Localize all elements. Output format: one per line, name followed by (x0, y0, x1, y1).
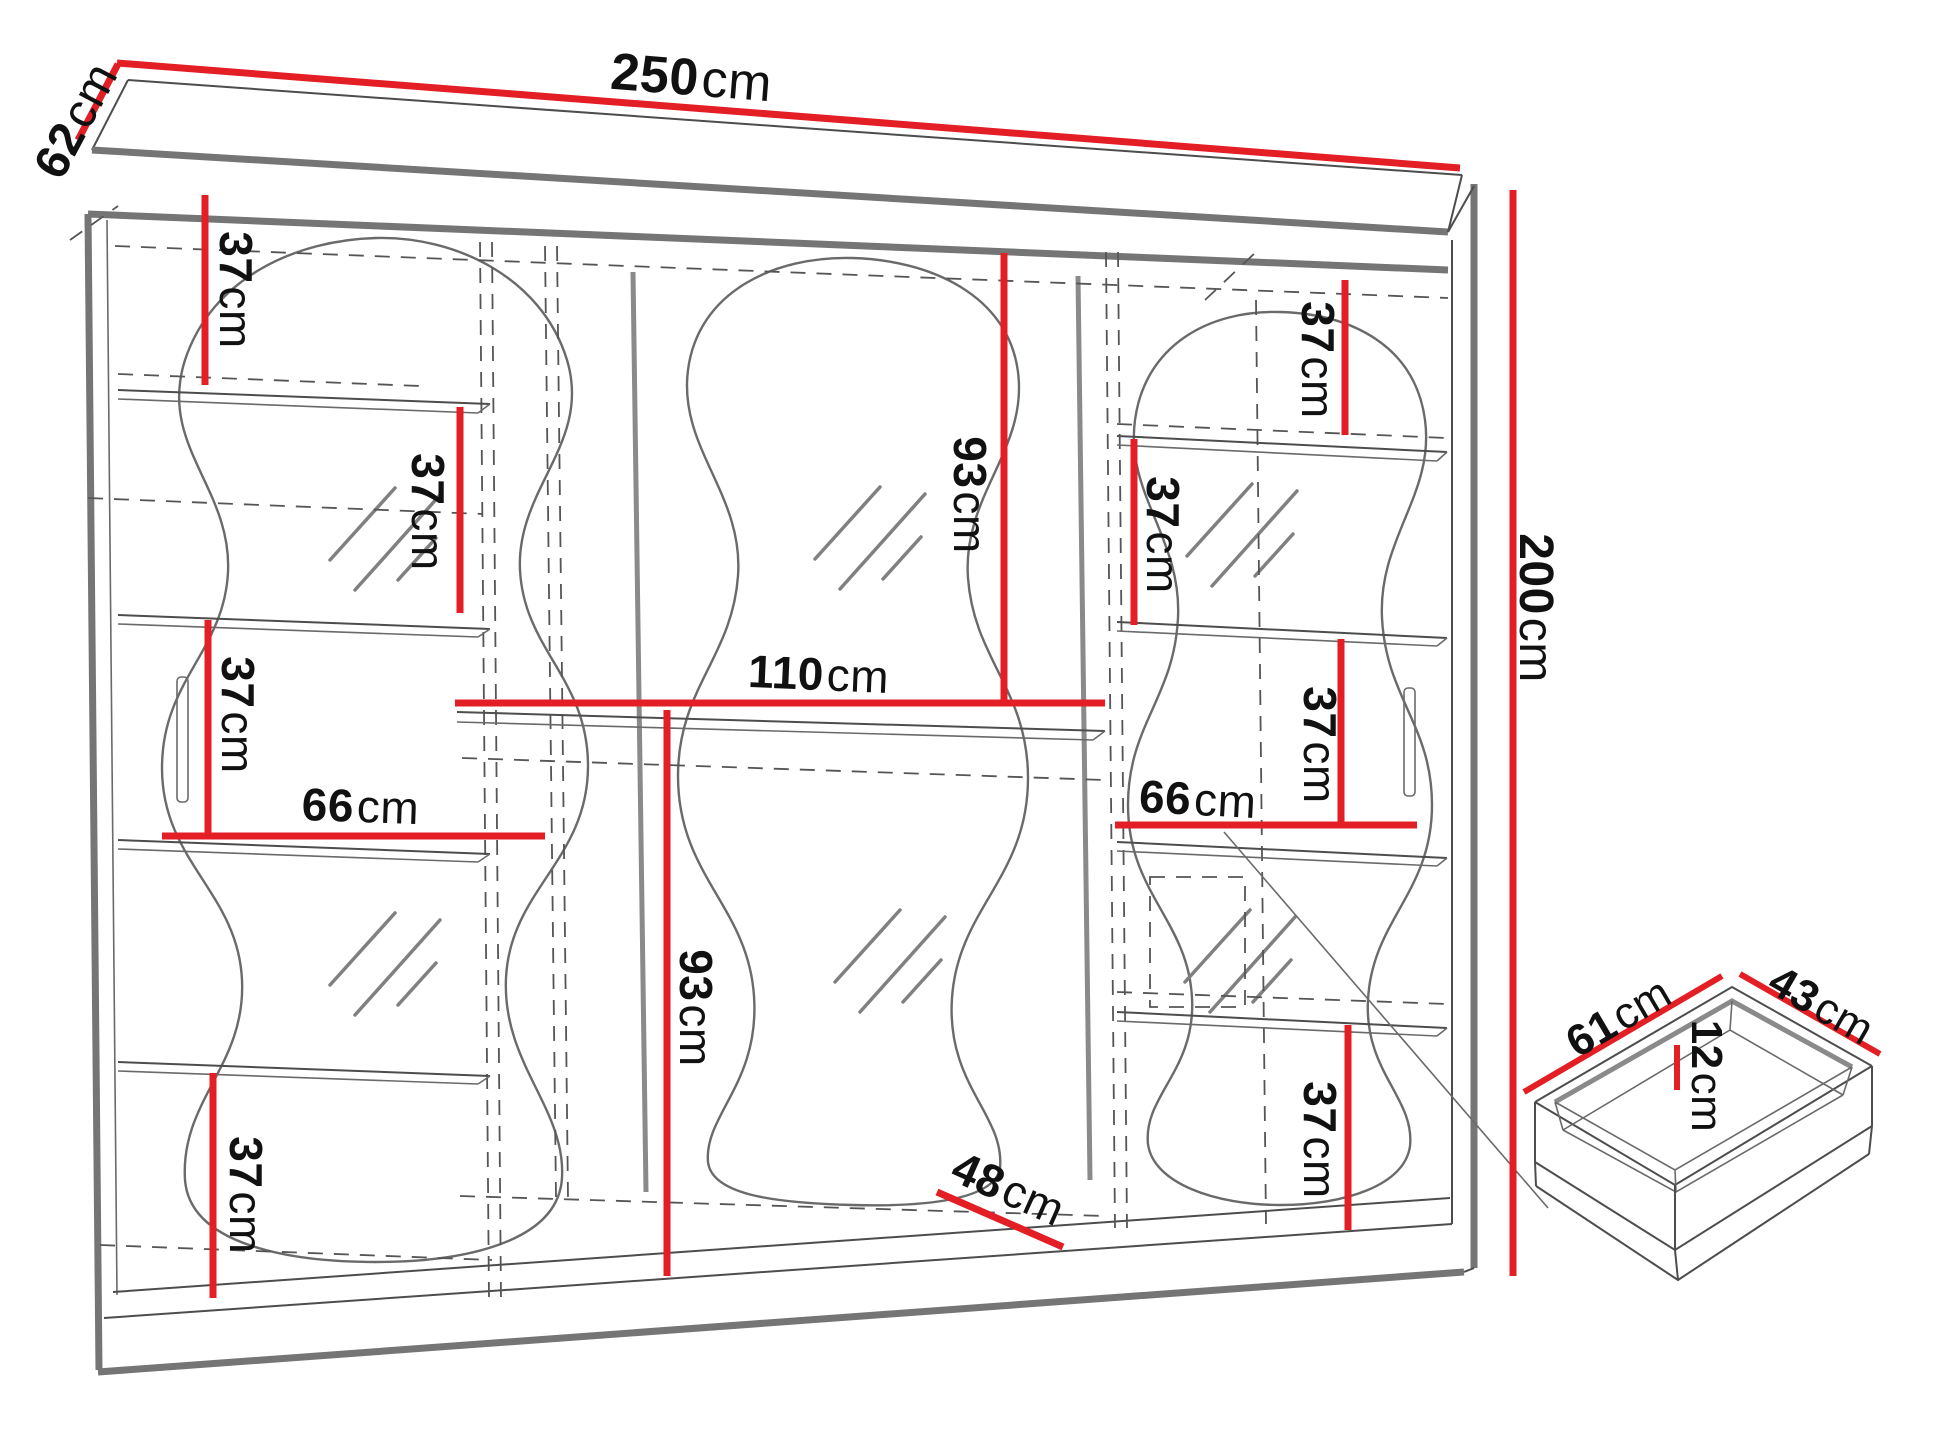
dim-label-37-left-bottom: 37cm (220, 1136, 272, 1254)
dim-label-93-lower: 93cm (670, 949, 722, 1067)
dim-label-66-left: 66cm (301, 778, 420, 834)
dim-label-37-right-upper: 37cm (1137, 476, 1189, 594)
cabinet-top-panel (92, 80, 1462, 232)
dim-label-drawer-43: 43cm (1760, 956, 1882, 1055)
dim-label-37-right-top: 37cm (1292, 301, 1344, 419)
dim-label-66-right: 66cm (1138, 770, 1258, 828)
hidden-interior-lines (70, 206, 1448, 1300)
dim-label-37-left-top: 37cm (210, 231, 262, 349)
dim-label-height-200: 200cm (1509, 533, 1562, 683)
middle-door-mirror (678, 258, 1028, 1205)
dim-label-93-upper: 93cm (944, 436, 996, 554)
wardrobe-dimension-diagram: 250cm 62cm 200cm 37cm 37cm 37cm 66cm 37c… (0, 0, 1940, 1455)
right-door-mirror (1128, 312, 1432, 1205)
dim-label-depth-62: 62cm (24, 54, 128, 187)
dim-label-37-left-middle: 37cm (212, 656, 264, 774)
dim-label-37-left-upper: 37cm (402, 453, 454, 571)
dim-label-drawer-12: 12cm (1682, 1020, 1731, 1133)
middle-section-shelf (457, 712, 1105, 740)
dim-label-37-right-middle: 37cm (1294, 686, 1346, 804)
dim-label-110-middle: 110cm (747, 645, 890, 703)
dim-line-width-250 (117, 63, 1460, 168)
dim-label-37-right-bottom: 37cm (1294, 1081, 1346, 1199)
